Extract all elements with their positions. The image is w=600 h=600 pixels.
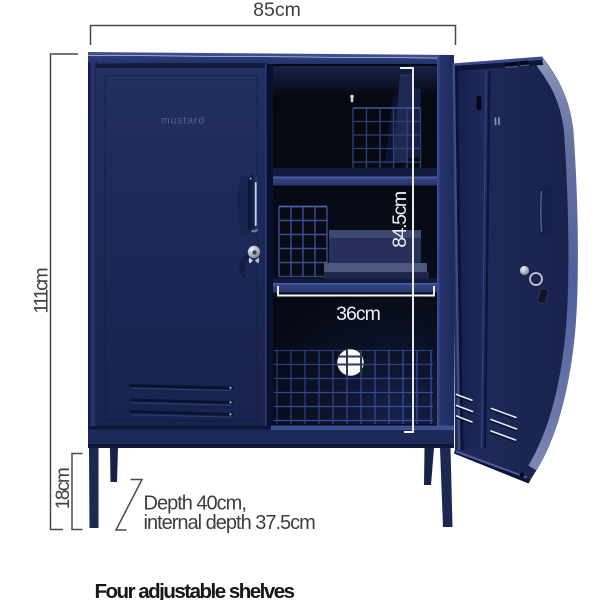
svg-text:internal depth 37.5cm: internal depth 37.5cm [144,512,316,534]
svg-text:111cm: 111cm [32,268,53,313]
svg-text:84.5cm: 84.5cm [389,192,411,248]
svg-text:85cm: 85cm [253,0,301,21]
svg-text:mustard: mustard [161,115,205,127]
svg-text:18cm: 18cm [53,468,74,509]
svg-text:Four adjustable shelves: Four adjustable shelves [95,580,295,600]
svg-text:36cm: 36cm [336,303,380,325]
